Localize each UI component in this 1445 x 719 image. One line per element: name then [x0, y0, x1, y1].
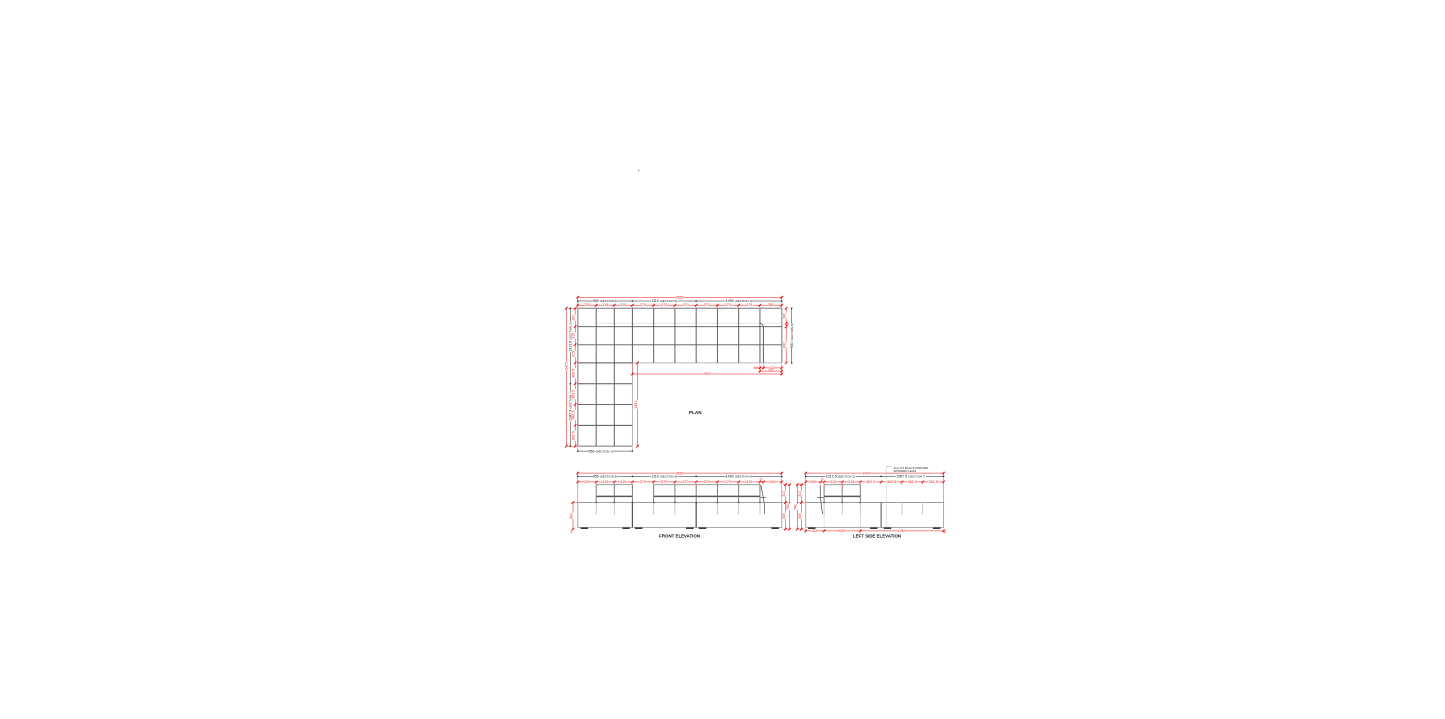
- svg-text:950 (SECTION 5): 950 (SECTION 5): [593, 475, 617, 479]
- svg-text:370: 370: [661, 303, 667, 307]
- svg-text:740: 740: [794, 504, 798, 510]
- svg-text:315: 315: [602, 303, 608, 307]
- svg-text:1490 (SECTION 4): 1490 (SECTION 4): [726, 475, 752, 479]
- svg-text:2400: 2400: [863, 471, 871, 475]
- svg-text:WOODEN LEGS: WOODEN LEGS: [894, 469, 917, 473]
- svg-text:362.5: 362.5: [887, 480, 896, 484]
- svg-text:315: 315: [848, 480, 854, 484]
- svg-text:380: 380: [768, 369, 774, 373]
- svg-text:1087.5 (SECTION 7): 1087.5 (SECTION 7): [896, 475, 925, 479]
- svg-text:1110 (SECTION 6): 1110 (SECTION 6): [651, 475, 677, 479]
- svg-text:2400: 2400: [565, 362, 569, 370]
- svg-text:362.5: 362.5: [572, 390, 576, 399]
- svg-text:362.5: 362.5: [929, 480, 938, 484]
- svg-text:370: 370: [683, 480, 689, 484]
- svg-text:370: 370: [725, 480, 731, 484]
- svg-text:430: 430: [798, 513, 802, 519]
- svg-text:320: 320: [812, 529, 818, 533]
- svg-text:310: 310: [798, 491, 802, 497]
- svg-text:630: 630: [839, 529, 845, 533]
- svg-text:315: 315: [572, 351, 576, 357]
- svg-text:370: 370: [704, 303, 710, 307]
- svg-text:LEFT SIDE ELEVATION: LEFT SIDE ELEVATION: [853, 533, 901, 538]
- svg-text:430: 430: [782, 513, 786, 519]
- svg-text:315: 315: [572, 333, 576, 339]
- svg-text:370: 370: [704, 480, 710, 484]
- svg-text:310: 310: [782, 491, 786, 497]
- svg-text:370: 370: [683, 303, 689, 307]
- svg-text:30: 30: [569, 530, 573, 534]
- svg-text:1312.5 (SECTION 1): 1312.5 (SECTION 1): [826, 475, 855, 479]
- svg-text:362.5: 362.5: [572, 431, 576, 440]
- svg-text:3550: 3550: [676, 296, 684, 300]
- svg-text:630: 630: [783, 342, 787, 348]
- svg-text:315: 315: [620, 480, 626, 484]
- svg-text:320: 320: [572, 314, 576, 320]
- svg-text:320: 320: [770, 480, 776, 484]
- svg-text:320: 320: [584, 303, 590, 307]
- svg-text:370: 370: [661, 480, 667, 484]
- svg-text:380: 380: [768, 303, 774, 307]
- svg-text:362.5: 362.5: [908, 480, 917, 484]
- svg-text:370: 370: [746, 303, 752, 307]
- svg-text:362.5: 362.5: [572, 369, 576, 378]
- svg-text:FRONT ELEVATION: FRONT ELEVATION: [659, 533, 700, 538]
- svg-text:430: 430: [569, 513, 573, 519]
- svg-text:740: 740: [786, 504, 790, 510]
- svg-text:362.5: 362.5: [572, 410, 576, 419]
- svg-text:30: 30: [943, 530, 947, 534]
- svg-text:315: 315: [602, 480, 608, 484]
- svg-text:950 (SECTION 6): 950 (SECTION 6): [790, 323, 794, 347]
- svg-text:315: 315: [620, 303, 626, 307]
- svg-text:260: 260: [783, 313, 787, 319]
- svg-text:2600: 2600: [703, 372, 711, 376]
- svg-text:PLAN: PLAN: [689, 410, 702, 415]
- svg-text:370: 370: [725, 303, 731, 307]
- svg-text:260: 260: [810, 480, 816, 484]
- svg-text:950 (SECTION 1): 950 (SECTION 1): [589, 449, 613, 453]
- svg-text:60: 60: [754, 366, 758, 370]
- svg-text:320: 320: [584, 480, 590, 484]
- svg-text:370: 370: [746, 480, 752, 484]
- svg-text:370: 370: [640, 480, 646, 484]
- svg-text:370: 370: [640, 303, 646, 307]
- svg-text:1450: 1450: [634, 401, 638, 409]
- svg-text:315: 315: [830, 480, 836, 484]
- svg-text:362.5: 362.5: [866, 480, 875, 484]
- svg-text:1450: 1450: [898, 529, 906, 533]
